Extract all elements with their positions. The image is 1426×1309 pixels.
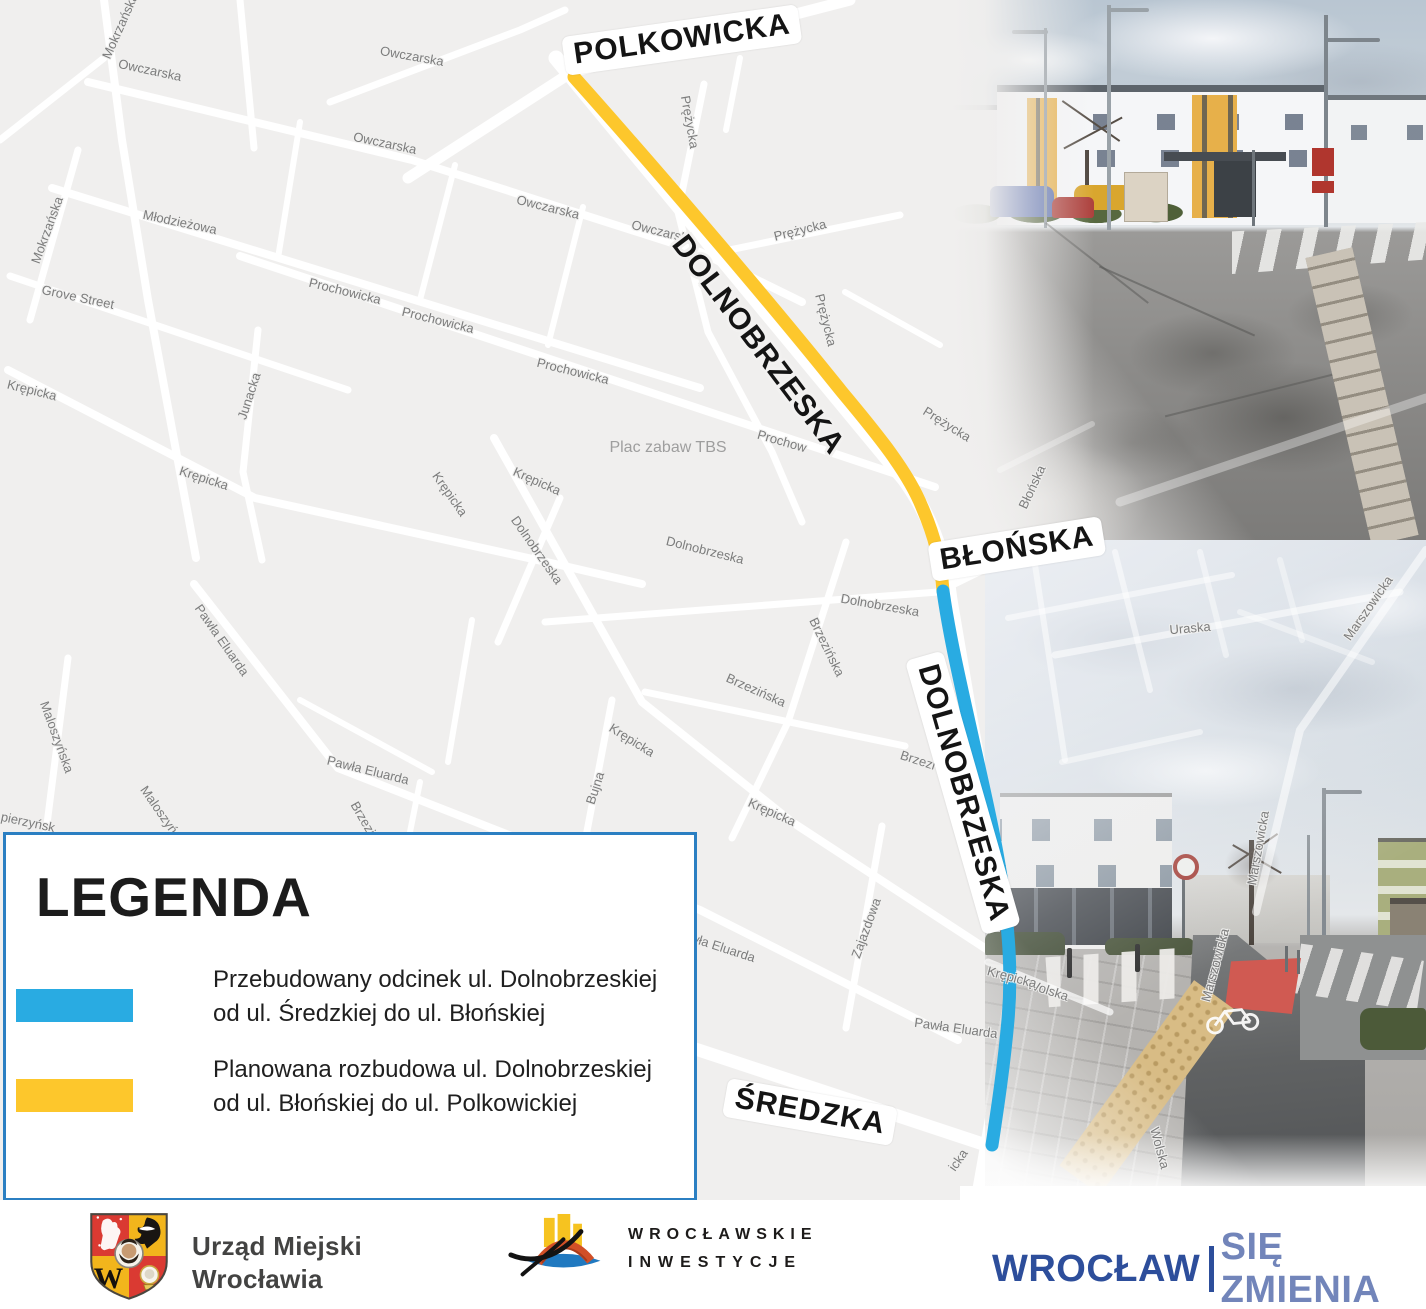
street-label: Krępicka — [429, 469, 470, 519]
legend-line: od ul. Błońskiej do ul. Polkowickiej — [213, 1090, 577, 1117]
major-street-label: DOLNOBRZESKA — [905, 650, 1021, 935]
street-label: Zajazdowa — [848, 896, 884, 960]
major-street-label: ŚREDZKA — [722, 1078, 898, 1146]
legend-line: od ul. Średzkiej do ul. Błońskiej — [213, 1000, 545, 1027]
street-label: Brzezińska — [806, 615, 847, 679]
street-label: Prężycka — [678, 94, 702, 149]
street-label: Krępicka — [511, 464, 563, 498]
slogan-divider-bar — [1209, 1246, 1213, 1292]
legend-title: LEGENDA — [36, 865, 312, 929]
street-label: icka — [945, 1146, 971, 1174]
street-label: Prężycka — [772, 216, 828, 243]
street-label: Grove Street — [40, 282, 115, 312]
street-label: Wolska — [1147, 1126, 1172, 1171]
legend-line: Przebudowany odcinek ul. Dolnobrzeskiej — [213, 966, 657, 993]
major-street-label: BŁOŃSKA — [927, 516, 1106, 582]
legend-text-planned: Planowana rozbudowa ul. Dolnobrzeskiej o… — [213, 1053, 652, 1121]
slogan-wroclaw-sie-zmienia: WROCŁAW SIĘ ZMIENIA — [992, 1226, 1426, 1309]
wroclawskie-inwestycje-name: WROCŁAWSKIE INWESTYCJE — [628, 1226, 818, 1272]
street-label: Brzezińska — [724, 670, 788, 710]
street-label: Prężycka — [920, 403, 973, 444]
street-label: Prochow — [756, 427, 809, 455]
street-label: Prężycka — [812, 292, 839, 348]
street-label: Krępicka — [986, 963, 1039, 991]
street-label: Dolnobrzeska — [508, 513, 566, 587]
street-label: Młodzieżowa — [142, 207, 219, 237]
street-label: Krępicka — [6, 377, 59, 404]
wroclawskie-inwestycje-logo-icon — [505, 1212, 617, 1290]
street-label: Owczarska — [352, 129, 418, 157]
legend-swatch-planned — [16, 1079, 133, 1112]
street-label: Pawła Eluarda — [326, 753, 411, 788]
street-label: Junacka — [234, 371, 263, 422]
city-office-line2: Wrocławia — [192, 1263, 362, 1296]
street-label: Krępicka — [746, 795, 798, 829]
street-label: Marszowicka — [1198, 927, 1232, 1003]
street-label: Dolnobrzeska — [840, 591, 921, 620]
street-label: Błońska — [1015, 463, 1048, 511]
legend-line: Planowana rozbudowa ul. Dolnobrzeskiej — [213, 1056, 652, 1083]
street-label: Prochowicka — [307, 275, 382, 307]
legend-item-planned: Planowana rozbudowa ul. Dolnobrzeskiej o… — [6, 1053, 694, 1143]
street-label: Mokrzańska — [99, 0, 141, 61]
street-label: Pawła Eluarda — [192, 601, 252, 678]
street-label: Mokrzańska — [28, 195, 66, 266]
slogan-wroclaw: WROCŁAW — [992, 1248, 1200, 1291]
street-label: Dolnobrzeska — [665, 533, 746, 567]
map: MokrzańskaOwczarskaOwczarskaOwczarskaOwc… — [0, 0, 1426, 1200]
street-label: Owczarska — [117, 56, 183, 84]
street-label: Marszowicka — [1340, 573, 1395, 643]
street-label: Krępicka — [607, 720, 658, 760]
infographic: MokrzańskaOwczarskaOwczarskaOwczarskaOwc… — [0, 0, 1426, 1309]
major-street-label: POLKOWICKA — [561, 4, 802, 76]
street-label: Owczarska — [379, 43, 445, 69]
street-label: Bujna — [583, 770, 608, 806]
street-label: Krępicka — [178, 463, 231, 493]
poi-label: Plac zabaw TBS — [609, 439, 726, 457]
city-office-line1: Urząd Miejski — [192, 1230, 362, 1263]
wi-name-line1: WROCŁAWSKIE — [628, 1226, 818, 1244]
footer: W Urząd Miejski Wrocławia — [0, 1200, 1426, 1309]
legend-text-reconstructed: Przebudowany odcinek ul. Dolnobrzeskiej … — [213, 963, 657, 1031]
slogan-sie-zmienia: SIĘ ZMIENIA — [1221, 1226, 1426, 1309]
major-street-label: DOLNOBRZESKA — [665, 229, 852, 461]
street-label: Prochowicka — [535, 355, 610, 387]
wroclaw-coat-of-arms: W — [88, 1210, 170, 1302]
legend-swatch-reconstructed — [16, 989, 133, 1022]
street-label: Maloszyńska — [37, 699, 77, 775]
street-label: Marszowicka — [1244, 810, 1272, 887]
street-label: Uraska — [1169, 619, 1211, 638]
street-label: Pawła Eluarda — [913, 1015, 998, 1042]
wi-name-line2: INWESTYCJE — [628, 1254, 818, 1272]
city-office-name: Urząd Miejski Wrocławia — [192, 1230, 362, 1296]
street-label: Owczarska — [515, 192, 581, 222]
street-label: Prochowicka — [400, 304, 475, 336]
legend: LEGENDA Przebudowany odcinek ul. Dolnobr… — [3, 832, 697, 1200]
legend-item-reconstructed: Przebudowany odcinek ul. Dolnobrzeskiej … — [6, 963, 694, 1053]
